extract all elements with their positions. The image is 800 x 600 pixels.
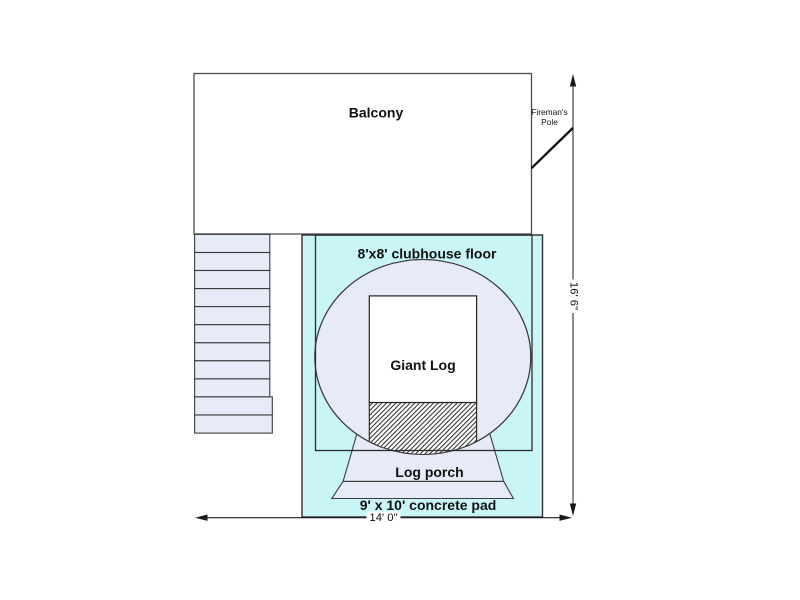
svg-text:Pole: Pole xyxy=(541,117,558,127)
svg-text:Giant Log: Giant Log xyxy=(390,357,455,373)
svg-text:Fireman's: Fireman's xyxy=(531,107,568,117)
svg-text:Log porch: Log porch xyxy=(395,464,463,480)
svg-text:16' 6": 16' 6" xyxy=(568,282,580,310)
svg-text:Balcony: Balcony xyxy=(349,105,404,121)
svg-text:14' 0": 14' 0" xyxy=(369,512,397,524)
svg-text:8'x8' clubhouse floor: 8'x8' clubhouse floor xyxy=(358,246,497,262)
svg-text:9' x 10' concrete pad: 9' x 10' concrete pad xyxy=(360,497,497,513)
